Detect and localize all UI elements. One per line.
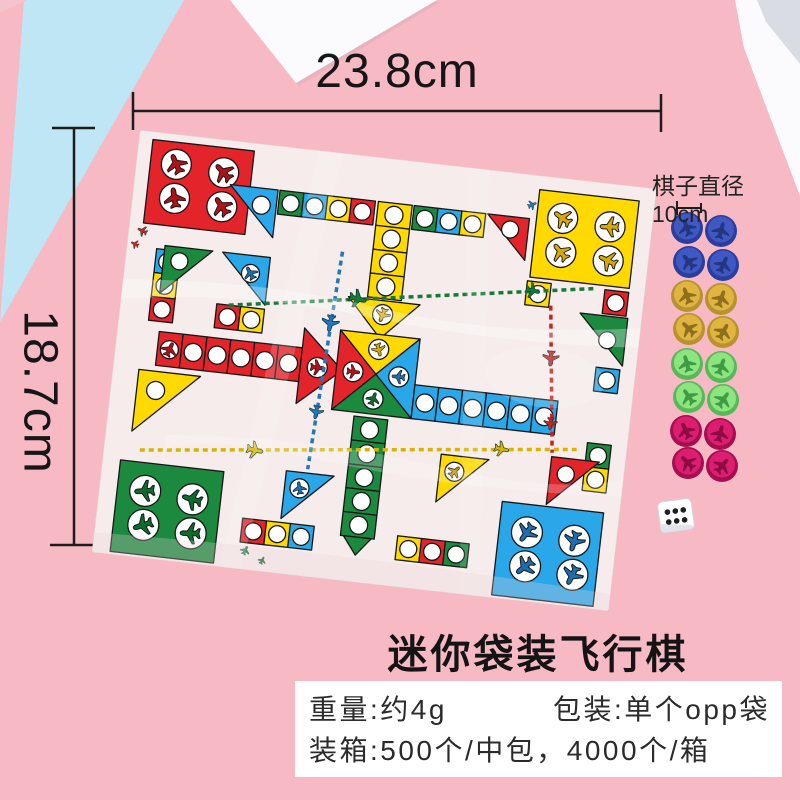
pink-paper-sliver (0, 0, 27, 13)
piece-group-pink (670, 415, 738, 482)
spec-row-1: 重量:约4g 包装:单个opp袋 (309, 689, 770, 730)
spec-package: 包装:单个opp袋 (553, 689, 770, 730)
spec-weight: 重量:约4g (309, 689, 447, 730)
product-title: 迷你袋装飞行棋 (388, 622, 689, 680)
piece-group-yellow (671, 280, 739, 348)
flying-chess-board (92, 130, 657, 611)
spec-row-2: 装箱:500个/中包，4000个/箱 (309, 730, 770, 771)
width-dimension-label: 23.8cm (315, 44, 478, 99)
piece-diameter-note: 棋子直径10cm (652, 167, 800, 228)
spec-carton: 装箱:500个/中包，4000个/箱 (309, 730, 710, 771)
product-photo: 23.8cm 18.7cm 棋子直径10cm 迷你袋装飞行棋 重量:约4g 包装… (0, 0, 800, 800)
game-pieces (640, 195, 780, 555)
yellow-base (530, 190, 639, 289)
pieces-svg (640, 195, 780, 555)
dice-icon (657, 498, 695, 533)
flying-chess-bag (92, 130, 657, 611)
piece-group-green (671, 348, 739, 416)
spec-box: 重量:约4g 包装:单个opp袋 装箱:500个/中包，4000个/箱 (295, 681, 782, 777)
height-dimension-label: 18.7cm (13, 310, 68, 473)
